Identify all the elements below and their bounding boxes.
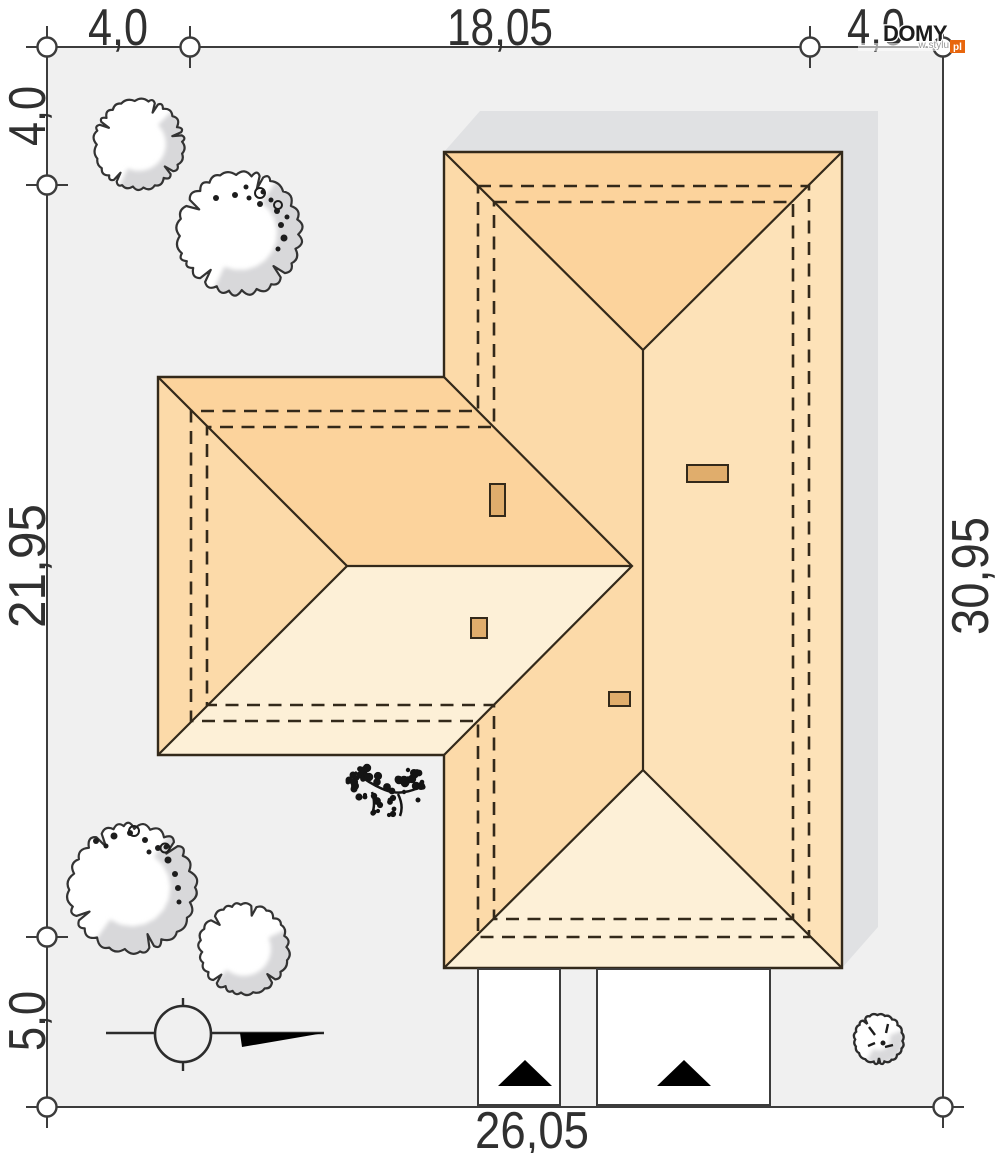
- svg-text:4,0: 4,0: [0, 86, 57, 146]
- svg-text:pl: pl: [953, 42, 962, 53]
- svg-text:21,95: 21,95: [0, 504, 57, 628]
- svg-text:5,0: 5,0: [0, 991, 57, 1051]
- svg-text:26,05: 26,05: [475, 1102, 589, 1153]
- svg-text:30,95: 30,95: [942, 517, 995, 635]
- svg-text:w stylu: w stylu: [917, 40, 949, 51]
- svg-text:4,0: 4,0: [88, 0, 148, 57]
- svg-text:18,05: 18,05: [447, 0, 553, 57]
